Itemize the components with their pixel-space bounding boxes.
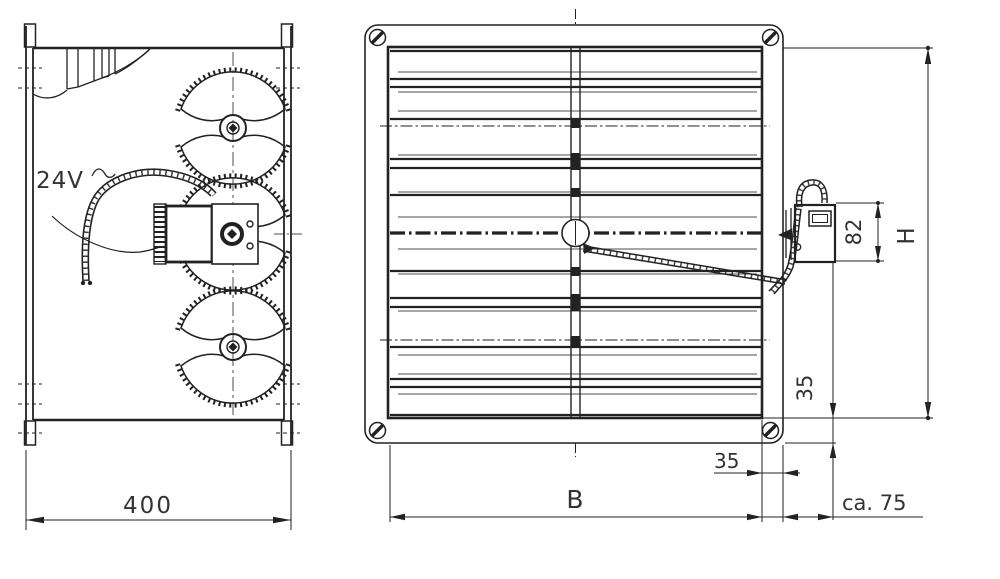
dimension-side-width: 400 xyxy=(26,450,291,530)
dimension-35-right-label: 35 xyxy=(714,449,739,473)
section-contour xyxy=(33,48,150,98)
arrowhead xyxy=(26,517,44,523)
dimension-flange-bottom: 35 xyxy=(785,262,836,520)
arrowhead xyxy=(830,403,836,418)
front-view: H 82 35 35 B xyxy=(365,9,933,522)
dimension-h-label: H xyxy=(894,227,920,244)
thin-wire xyxy=(52,216,160,252)
arrowhead xyxy=(390,514,405,520)
dimension-actuator-projection: ca. 75 xyxy=(783,491,907,520)
damper-drawing: 24V 400 xyxy=(0,0,1000,579)
arrowhead xyxy=(925,402,931,418)
dimension-82-label: 82 xyxy=(842,219,866,246)
arrowhead xyxy=(747,514,762,520)
arrowhead xyxy=(783,514,798,520)
arrowhead xyxy=(875,203,881,218)
dimension-35-bottom-label: 35 xyxy=(793,375,817,402)
voltage-squiggle xyxy=(92,169,115,177)
arrowhead xyxy=(747,470,762,476)
arrowhead xyxy=(273,517,291,523)
arrowhead xyxy=(925,48,931,64)
actuator-side-view xyxy=(154,204,258,264)
arrowhead xyxy=(818,514,833,520)
dimension-400-label: 400 xyxy=(123,493,173,519)
side-view: 24V 400 xyxy=(18,24,302,530)
technical-drawing-sheet: 24V 400 xyxy=(0,0,1000,579)
actuator-body xyxy=(166,206,212,262)
dimension-actuator-height: 82 xyxy=(836,201,884,263)
voltage-label: 24V xyxy=(36,168,84,194)
arrowhead xyxy=(783,470,798,476)
dimension-ca75-label: ca. 75 xyxy=(842,491,907,515)
arrowhead xyxy=(875,246,881,261)
dimension-b-label: B xyxy=(566,485,583,514)
arrowhead xyxy=(830,443,836,458)
